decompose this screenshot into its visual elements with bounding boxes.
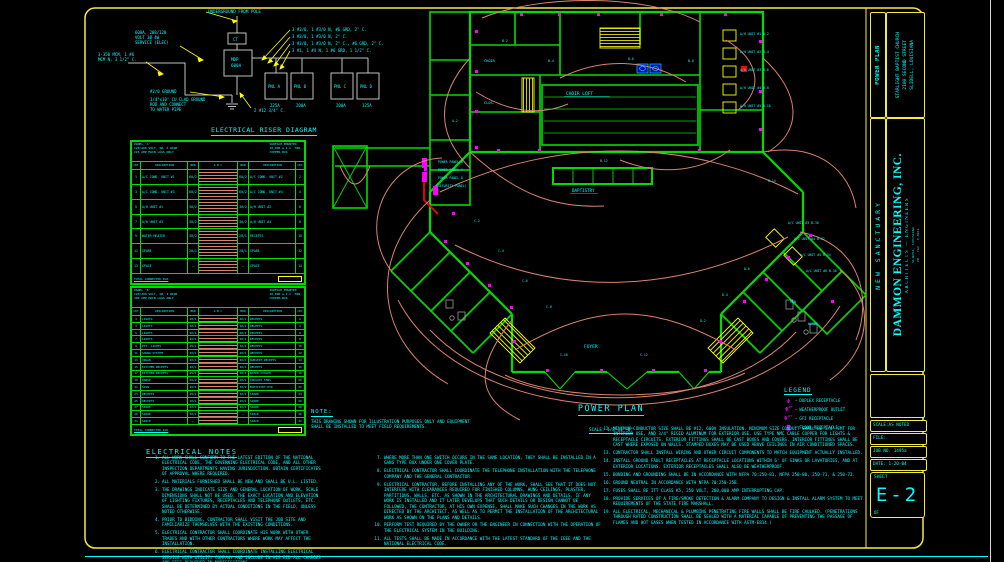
legend-label: WEATHERPROOF OUTLET [799,408,845,412]
breaker-size: 20/1 [238,357,249,363]
ac-unit-callout: A/C UNIT #4 B-32 [794,237,825,241]
panel-schedule-b-columns: CKTDESCRIPTIONBKRA B CBKRDESCRIPTIONCKT [132,308,304,316]
schedule-total-label: TOTAL CONNECTED KVA [134,428,168,432]
ckt-number: 15 [132,364,141,370]
note-item: 5. ELECTRICAL CONTRACTOR SHALL COORDINAT… [150,530,322,546]
note-text: THIS DRAWING SHOWN FOR ILLUSTRATION PURP… [311,419,473,430]
schedule-row: 9 WATER HEATER 30/2 20/1 RECEPTS 10 [132,229,304,244]
ckt-number: 27 [132,405,141,411]
breaker-size: 20/1 [188,405,199,411]
circuit-tag: C-12 [640,353,648,357]
breaker-size: 30/2 [238,384,249,390]
legend-dash: – [795,408,797,412]
circuit-tag: B-4 [548,59,554,63]
note-item: 1. ALL WORK SHALL CONFORM TO THE LATEST … [150,455,322,477]
breaker-size: 20/1 [188,411,199,417]
note-number: 17. [601,488,613,493]
receptacle-symbol-icon: ΦGFI [784,415,793,422]
load-description: LIGHTS [141,330,188,336]
load-description: EXHAUST FANS [249,377,296,383]
circuit-tag: C-10 [560,353,568,357]
load-description: SIGN [141,384,188,390]
load-description: SPACE [249,418,296,424]
note-item: 13. CONTRACTOR SHALL INSTALL WIRING AND … [601,450,863,455]
breaker-size: 20/1 [238,244,249,258]
breaker-size: 20/1 [238,350,249,356]
riser-feeder-callout: 3 #3/0, 1 #3/0 N, 2" C., #6 GRD, 2" C. [292,41,384,46]
riser-panel-label: PNL D [360,84,373,89]
legend-dash: – [795,399,797,403]
ckt-number: 14 [296,259,304,273]
load-description: RECEPTS [249,229,296,243]
ckt-number: 12 [296,350,304,356]
load-description: EXT. LIGHTS [141,343,188,349]
load-description: SPARE [249,391,296,397]
load-description: WATER HEATER [141,229,188,243]
ckt-number: 11 [132,350,141,356]
note-item: 10. PERFORM TEST REQUIRED BY THE OWNER O… [372,522,602,533]
ckt-number: 21 [132,384,141,390]
load-description: RECEPTS [249,364,296,370]
ckt-number: 4 [296,323,304,329]
panel-schedule-a-specs: SURFACE MOUNTED10,000 A.I.C. MIN.COPPER … [269,143,302,160]
note-number: 18. [601,496,613,507]
note-text: THE DRAWINGS INDICATE SIZE AND GENERAL L… [162,487,322,514]
titleblock-project-type-box: NEW SANCTUARY [870,118,886,372]
room-label-choir-loft: CHOIR LOFT [566,91,593,97]
riser-ground-label: #2/0 GROUND [150,89,177,94]
ckt-number: 2 [296,170,304,184]
riser-underground-label: UNDERGROUND FROM POLE [208,9,261,14]
breaker-size: 20/1 [188,371,199,377]
ckt-number: 29 [132,411,141,417]
ckt-number: 30 [296,411,304,417]
load-description: LIGHTS [141,336,188,342]
note-number: 2. [150,479,162,484]
breaker-size: 20/1 [188,343,199,349]
firm-address: SLIDELL, LOUISIANA [911,227,915,263]
breaker-ladder [199,200,238,214]
load-description: KITCHEN RECEPTS [141,371,188,377]
schedule-row: 5 LIGHTS 20/1 20/1 RECEPTS 6 [132,330,304,337]
breaker-size: 60/2 [238,170,249,184]
note-text: ELECTRICAL CONTRACTOR SHALL COORDINATE H… [162,530,322,546]
project-type-label: NEW SANCTUARY [874,200,882,290]
breaker-size: 20/1 [238,316,249,322]
schedule-row: 11 SOUND SYSTEM 20/1 20/1 RECEPTS 12 [132,350,304,357]
breaker-ladder [199,377,238,383]
room-label-men: MEN [790,300,796,304]
panel-schedule-b-footer: TOTAL CONNECTED KVA [132,425,304,434]
breaker-size: — [238,411,249,417]
breaker-size: 20/1 [188,391,199,397]
load-description: SPACE [141,418,188,424]
note-number: 7. [372,455,384,466]
breaker-ladder [199,244,238,258]
circuit-tag: B-6 [628,57,634,61]
room-label-women: WOMEN [808,322,818,326]
breaker-ladder [199,343,238,349]
legend-item: ΦGFI – GFI RECEPTACLE [784,415,870,422]
ckt-number: 9 [132,343,141,349]
load-description: A/C COND. UNIT #1 [141,170,188,184]
electrical-notes-column-3: 12. MINIMUM CONDUCTOR SIZE SHALL BE #12,… [601,426,863,528]
ckt-number: 2 [296,316,304,322]
load-description: RECEPTS [249,323,296,329]
illustration-note: NOTE: THIS DRAWING SHOWN FOR ILLUSTRATIO… [311,398,473,430]
note-item: 3. THE DRAWINGS INDICATE SIZE AND GENERA… [150,487,322,514]
sheet-label: SHEET [874,475,888,480]
note-text: WHERE MORE THAN ONE SWITCH OCCURS IN THE… [384,455,602,466]
schedule-row: 11 SPARE 20/1 20/1 SPARE 12 [132,244,304,259]
power-plan-title: POWER PLAN [578,404,644,416]
load-description: RECEPTS [249,350,296,356]
receptacle-symbol-icon: Φ [784,398,793,405]
panel-callout-b: POWER PANEL B [438,160,463,164]
ckt-number: 32 [296,418,304,424]
breaker-size: 20/1 [188,398,199,404]
load-description: BAPTISTRY HTR [249,384,296,390]
note-title: NOTE: [311,409,333,417]
breaker-ladder [199,336,238,342]
schedule-row: 13 ORGAN 20/1 20/1 NURSERY RECEPTS 14 [132,357,304,364]
panel-schedule-b-header: PANEL 'B'120/208 VOLT, 3Ø, 4 WIRE200 AMP… [132,288,304,308]
breaker-size: 20/1 [188,364,199,370]
breaker-ladder [199,350,238,356]
ckt-number: 7 [132,215,141,229]
ah-unit-callout: A/H UNIT #1 B-2 [740,32,769,36]
note-text: PRIOR TO BIDDING, CONTRACTOR SHALL VISIT… [162,517,322,528]
ckt-number: 6 [296,330,304,336]
note-number: 19. [601,509,613,525]
load-description: SPARE [249,405,296,411]
ckt-number: 25 [132,398,141,404]
schedule-row: 3 LIGHTS 20/1 20/1 RECEPTS 4 [132,323,304,330]
riser-feeder-callout: 3 #3/0, 1 #3/0 N, #6 GRD, 2" C. [292,27,367,32]
legend-dash: – [795,417,797,421]
sheet-number: E-2 [871,484,924,506]
load-description: WATER COOLER [249,371,296,377]
note-number: 3. [150,487,162,514]
panel-schedule-b: PANEL 'B'120/208 VOLT, 3Ø, 4 WIRE200 AMP… [130,286,306,436]
riser-conduit-label: 2 #12 3/4" C. [254,108,285,113]
note-text: INSTALL GROUND FAULT RECEPTACLES AT RECE… [613,458,863,469]
breaker-size: 60/2 [188,185,199,199]
legend-title: LEGEND [784,387,812,395]
breaker-size: 20/1 [238,229,249,243]
load-description: SPACE [249,259,296,273]
breaker-ladder [199,215,238,229]
schedule-row: 7 LIGHTS 20/1 20/1 RECEPTS 8 [132,336,304,343]
circuit-tag: B-12 [600,159,608,163]
ckt-number: 8 [296,215,304,229]
note-item: 2. ALL MATERIALS FURNISHED SHALL BE NEW … [150,479,322,484]
breaker-ladder [199,391,238,397]
load-description: RANGE [141,377,188,383]
breaker-ladder [199,398,238,404]
riser-panel-amps: 200A [336,103,346,108]
panel-schedule-a-title: PANEL 'A'120/208 VOLT, 3Ø, 4 WIRE225 AMP… [134,143,177,160]
note-text: ALL TESTS SHALL BE MADE IN ACCORDANCE WI… [384,536,602,547]
titleblock-drawing-title: POWER PLAN [875,45,881,85]
breaker-size: 20/1 [238,323,249,329]
load-description: SPACE [249,411,296,417]
breaker-size: 20/1 [238,391,249,397]
ckt-number: 24 [296,391,304,397]
load-description: KITCHEN RECEPTS [141,364,188,370]
schedule-row: 29 SPARE 20/1 — SPACE 30 [132,411,304,418]
load-description: ORGAN [141,357,188,363]
note-number: 16. [601,480,613,485]
note-item: 19. ALL ELECTRICAL, MECHANICAL & PLUMBIN… [601,509,863,525]
ckt-number: 9 [132,229,141,243]
note-item: 11. ALL TESTS SHALL BE MADE IN ACCORDANC… [372,536,602,547]
breaker-size: 20/1 [188,316,199,322]
load-description: RECEPTS [249,343,296,349]
riser-panel-label: PNL C [334,84,347,89]
riser-service-label: SERVICE (ELEC) [135,40,169,45]
load-description: LIGHTS [141,323,188,329]
note-text: ELECTRICAL CONTRACTOR SHALL COORDINATE T… [384,468,602,479]
panel-schedule-a-rows: 1 A/C COND. UNIT #1 60/2 60/2 A/C COND. … [132,170,304,274]
room-label-baptistry: BAPTISTRY [572,188,595,193]
note-number: 9. [372,482,384,520]
breaker-size: 20/1 [188,350,199,356]
circuit-tag: D-2 [700,319,706,323]
titleblock-job-number: JOB NO. 1495a [870,446,927,458]
floorplan-walls [333,12,866,389]
riser-diagram-title: ELECTRICAL RISER DIAGRAM [211,126,317,136]
ckt-number: 1 [132,170,141,184]
breaker-ladder [199,259,238,273]
breaker-size: 20/1 [188,336,199,342]
room-label-foyer: FOYER [584,344,598,350]
titleblock-file: FILE: [870,433,927,445]
circuit-tag: C-6 [522,279,528,283]
riser-ct-label: CT [233,37,238,42]
breaker-size: — [188,259,199,273]
title-block: POWER PLAN STARLIGHT BAPTIST CHURCH 2100… [866,8,926,552]
ckt-number: 17 [132,371,141,377]
viewport-edge-line [990,0,991,562]
load-description: SPACE [141,259,188,273]
panel-schedule-b-title: PANEL 'B'120/208 VOLT, 3Ø, 4 WIRE200 AMP… [134,289,177,306]
ckt-number: 10 [296,343,304,349]
load-description: A/C COND. UNIT #4 [249,185,296,199]
panel-callout-d: POWER PANEL D [438,176,463,180]
room-label-closet: CLOS. [484,101,495,105]
ckt-number: 13 [132,259,141,273]
breaker-ladder [199,371,238,377]
ac-unit-callout: A/C UNIT #3 B-30 [788,221,819,225]
ckt-number: 12 [296,244,304,258]
titleblock-firm-box: DAMMON ENGINEERING, INC. ARCHITECTS — EN… [886,118,925,372]
circuit-tag: B-2 [502,39,508,43]
breaker-ladder [199,330,238,336]
breaker-size: 20/1 [238,377,249,383]
breaker-size: 20/1 [188,323,199,329]
legend-item: Φ – DUPLEX RECEPTACLE [784,398,870,405]
panel-callout-c: POWER PANEL C [438,168,463,172]
schedule-row: 31 SPACE — — SPACE 32 [132,418,304,425]
breaker-size: 30/2 [188,200,199,214]
riser-panel-amps: 125A [362,103,372,108]
breaker-ladder [199,411,238,417]
note-item: 14. INSTALL GROUND FAULT RECEPTACLES AT … [601,458,863,469]
note-number: 15. [601,472,613,477]
note-item: 16. GROUND NEUTRAL IN ACCORDANCE WITH NF… [601,480,863,485]
schedule-row: 17 KITCHEN RECEPTS 20/1 20/1 WATER COOLE… [132,371,304,378]
schedule-row: 27 SPARE 20/1 20/1 SPARE 28 [132,405,304,412]
note-text: MINIMUM CONDUCTOR SIZE SHALL BE #12, 600… [613,426,863,448]
load-description: SPARE [249,398,296,404]
load-description: SOUND SYSTEM [141,350,188,356]
titleblock-sheet-box: SHEET E-2 OF [870,472,925,518]
ckt-number: 18 [296,371,304,377]
circuit-tag: C-4 [498,249,504,253]
circuit-tag: D-4 [722,293,728,297]
ac-unit-callout: A/C UNIT #5 B-34 [800,253,831,257]
room-label-choir: CHOIR [484,59,496,63]
load-description: RECEPTS [141,398,188,404]
riser-feeder-callout: 3 #1, 1 #4 N, 1 #6 GRD, 1 1/2" C. [292,48,371,53]
cad-drawing-page: UNDERGROUND FROM POLE 600A, 208/120 VOLT… [0,0,1004,562]
schedule-row: 5 A/H UNIT #1 30/2 30/2 A/H UNIT #2 6 [132,200,304,215]
load-description: A/H UNIT #4 [249,215,296,229]
schedule-row: 13 SPACE — — SPACE 14 [132,259,304,274]
note-text: FUSES SHALL BE ITT CLASS K5, 250 VOLT, 2… [613,488,863,493]
note-item: 12. MINIMUM CONDUCTOR SIZE SHALL BE #12,… [601,426,863,448]
breaker-size: 20/1 [238,371,249,377]
sheet-bottom-line [85,556,988,557]
riser-panel-label: PNL B [294,84,307,89]
sheet-of-label: OF [874,510,879,515]
schedule-row: 15 KITCHEN RECEPTS 20/1 20/1 RECEPTS 16 [132,364,304,371]
schedule-row: 25 RECEPTS 20/1 20/1 SPARE 26 [132,398,304,405]
note-text: ELECTRICAL CONTRACTOR, BEFORE INSTALLING… [384,482,602,520]
riser-feeder-label: MCM N, 3 1/2" C. [98,57,137,62]
breaker-size: 20/1 [238,336,249,342]
breaker-size: 60/2 [238,185,249,199]
riser-panel-amps: 200A [296,103,306,108]
note-text: ALL MATERIALS FURNISHED SHALL BE NEW AND… [162,479,322,484]
ah-unit-callout: A/H UNIT #2 B-4 [740,50,769,54]
load-description: LIGHTS [141,316,188,322]
load-description: RECEPTS [249,336,296,342]
riser-feeder-callout: 3 #3/0, 1 #3/0 N, 2" C. [292,34,347,39]
schedule-total-label: TOTAL CONNECTED KVA [134,277,168,281]
panel-schedule-a: PANEL 'A'120/208 VOLT, 3Ø, 4 WIRE225 AMP… [130,140,306,285]
load-description: A/H UNIT #2 [249,200,296,214]
schedule-row: 21 SIGN 20/1 30/2 BAPTISTRY HTR 22 [132,384,304,391]
ckt-number: 4 [296,185,304,199]
ckt-number: 5 [132,200,141,214]
note-number: 8. [372,468,384,479]
firm-contact: PH · FAX · E-MAIL [916,228,920,262]
breaker-size: 20/1 [188,330,199,336]
schedule-row: 23 RECEPTS 20/1 20/1 SPARE 24 [132,391,304,398]
load-description: SPARE [141,411,188,417]
breaker-ladder [199,384,238,390]
titleblock-drawing-title-box: POWER PLAN [870,12,886,118]
load-description: RECEPTS [141,391,188,397]
note-number: 14. [601,458,613,469]
breaker-ladder [199,418,238,424]
load-description: RECEPTS [249,330,296,336]
breaker-size: 20/1 [238,364,249,370]
ckt-number: 1 [132,316,141,322]
note-number: 10. [372,522,384,533]
riser-panel-label: PNL A [268,84,281,89]
ckt-number: 23 [132,391,141,397]
note-number: 11. [372,536,384,547]
breaker-size: 30/2 [238,215,249,229]
breaker-ladder [199,405,238,411]
note-item: 7. WHERE MORE THAN ONE SWITCH OCCURS IN … [372,455,602,466]
load-description: A/C COND. UNIT #3 [141,185,188,199]
circuit-tag: A-2 [452,119,458,123]
panel-callout-security: (SECURITY PANEL) [436,184,467,188]
ckt-number: 22 [296,384,304,390]
note-item: 17. FUSES SHALL BE ITT CLASS K5, 250 VOL… [601,488,863,493]
firm-name: DAMMON ENGINEERING, INC. [892,153,904,336]
ah-unit-callout: A/H UNIT #5 B-10 [740,104,771,108]
ckt-number: 16 [296,364,304,370]
note-text: ALL ELECTRICAL, MECHANICAL & PLUMBING PE… [613,509,863,525]
breaker-size: 60/2 [188,170,199,184]
schedule-stamp-box [278,427,302,433]
riser-mdp-label: 600A [231,63,242,68]
note-text: ALL WORK SHALL CONFORM TO THE LATEST EDI… [162,455,322,477]
ckt-number: 8 [296,336,304,342]
breaker-ladder [199,170,238,184]
breaker-size: — [188,418,199,424]
note-item: 8. ELECTRICAL CONTRACTOR SHALL COORDINAT… [372,468,602,479]
titleblock-project-box: STARLIGHT BAPTIST CHURCH 2100 SECOND STR… [886,12,925,118]
panel-schedule-a-columns: CKTDESCRIPTIONBKRA B CBKRDESCRIPTIONCKT [132,162,304,170]
note-item: 15. BONDING AND GROUNDING SHALL BE IN AC… [601,472,863,477]
ckt-number: 10 [296,229,304,243]
ckt-number: 20 [296,377,304,383]
load-description: A/H UNIT #3 [141,215,188,229]
breaker-size: 20/1 [188,357,199,363]
schedule-row: 7 A/H UNIT #3 30/2 30/2 A/H UNIT #4 8 [132,215,304,230]
load-description: SPARE [141,244,188,258]
circuit-tag: B-8 [688,59,694,63]
legend-label: DUPLEX RECEPTACLE [799,399,840,403]
riser-ground-rod-label: TO WATER PIPE [150,107,182,112]
panel-schedule-a-header: PANEL 'A'120/208 VOLT, 3Ø, 4 WIRE225 AMP… [132,142,304,162]
riser-panel-amps: 225A [270,103,280,108]
breaker-ladder [199,357,238,363]
circuit-tag: D-6 [744,267,750,271]
panel-schedule-b-rows: 1 LIGHTS 20/1 20/1 RECEPTS 2 3 LIGHTS 20… [132,316,304,425]
load-description: A/H UNIT #1 [141,200,188,214]
schedule-stamp-box [278,276,302,282]
ckt-number: 14 [296,357,304,363]
note-number: 12. [601,426,613,448]
circuit-tag: C-8 [546,305,552,309]
circuit-arcs [340,0,864,420]
circuit-tag: C-2 [474,219,480,223]
breaker-ladder [199,185,238,199]
breaker-size: 20/1 [238,398,249,404]
titleblock-scale: SCALE:AS NOTED [870,420,927,432]
schedule-row: 9 EXT. LIGHTS 20/1 20/1 RECEPTS 10 [132,343,304,350]
circuit-tag: B-14 [768,179,776,183]
load-description: A/C COND. UNIT #2 [249,170,296,184]
firm-subtitle: ARCHITECTS — ENGINEERS [905,197,910,293]
